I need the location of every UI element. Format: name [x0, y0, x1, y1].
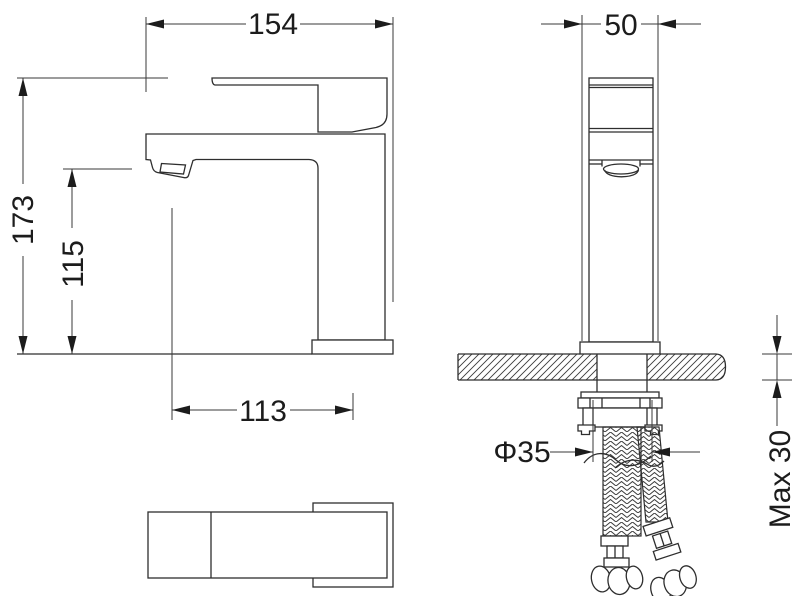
dim-spout-height-label: 115	[57, 240, 90, 288]
hose-ferrule	[601, 536, 628, 546]
countertop-hatch-right	[647, 354, 716, 380]
arrowhead	[68, 169, 77, 187]
front-view	[580, 78, 660, 354]
dim-max-counter-thickness: Max 30	[762, 315, 797, 528]
dim-total-height-label: 173	[7, 195, 40, 245]
lever-handle-side	[212, 78, 387, 132]
aerator-ring-front	[604, 164, 639, 174]
nut-wing-left	[578, 425, 595, 435]
mounting-washer	[581, 392, 659, 398]
faucet-body-front	[589, 78, 653, 342]
side-view	[17, 78, 393, 354]
arrowhead	[564, 20, 582, 29]
arrowhead	[773, 380, 782, 398]
technical-drawing-page: 154 50 173 115 113	[0, 0, 800, 596]
base-flange-front	[580, 342, 660, 354]
dim-body-width-label: 50	[604, 9, 637, 42]
arrowhead	[773, 336, 782, 354]
technical-drawing: 154 50 173 115 113	[0, 0, 800, 596]
dim-hole-diameter-label: Φ35	[493, 436, 550, 469]
arrowhead	[19, 78, 28, 96]
dim-total-depth-label: 154	[248, 8, 298, 41]
hose-ferrule	[604, 558, 629, 567]
arrowhead	[172, 406, 190, 415]
arrowhead	[146, 20, 164, 29]
dim-total-height: 173	[7, 78, 168, 354]
countertop-section	[458, 354, 726, 380]
arrowhead	[68, 336, 77, 354]
spout-handle-plan	[148, 512, 387, 578]
countertop-hatch-left	[458, 354, 597, 380]
braided-hose-left	[603, 427, 641, 536]
nut-collar	[583, 408, 657, 427]
dim-spout-reach-label: 113	[239, 395, 287, 428]
arrowhead	[575, 448, 593, 457]
arrowhead	[19, 336, 28, 354]
arrowhead	[375, 20, 393, 29]
dim-spout-height: 115	[57, 169, 132, 354]
arrowhead	[335, 406, 353, 415]
dim-max-counter-thickness-label: Max 30	[764, 430, 797, 528]
spout-aerator-side	[160, 164, 186, 175]
arrowhead	[658, 20, 676, 29]
plan-view	[148, 503, 393, 587]
base-plate-side	[312, 340, 393, 354]
